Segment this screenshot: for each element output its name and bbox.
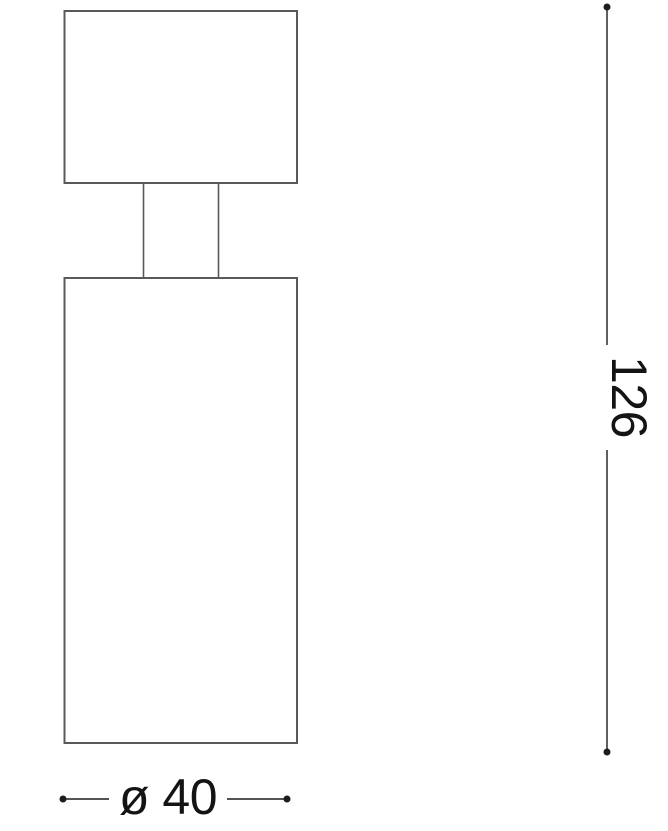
diameter-dimension-label: ø 40	[119, 769, 217, 825]
body-outline	[65, 278, 298, 743]
height-dimension-label: 126	[601, 356, 657, 438]
drawing-svg: 126 ø 40	[0, 0, 668, 831]
height-dimension-dot-bottom	[604, 749, 611, 756]
dimension-drawing: 126 ø 40	[0, 0, 668, 831]
diameter-dimension-dot-right	[284, 796, 291, 803]
canopy-outline	[65, 11, 298, 183]
